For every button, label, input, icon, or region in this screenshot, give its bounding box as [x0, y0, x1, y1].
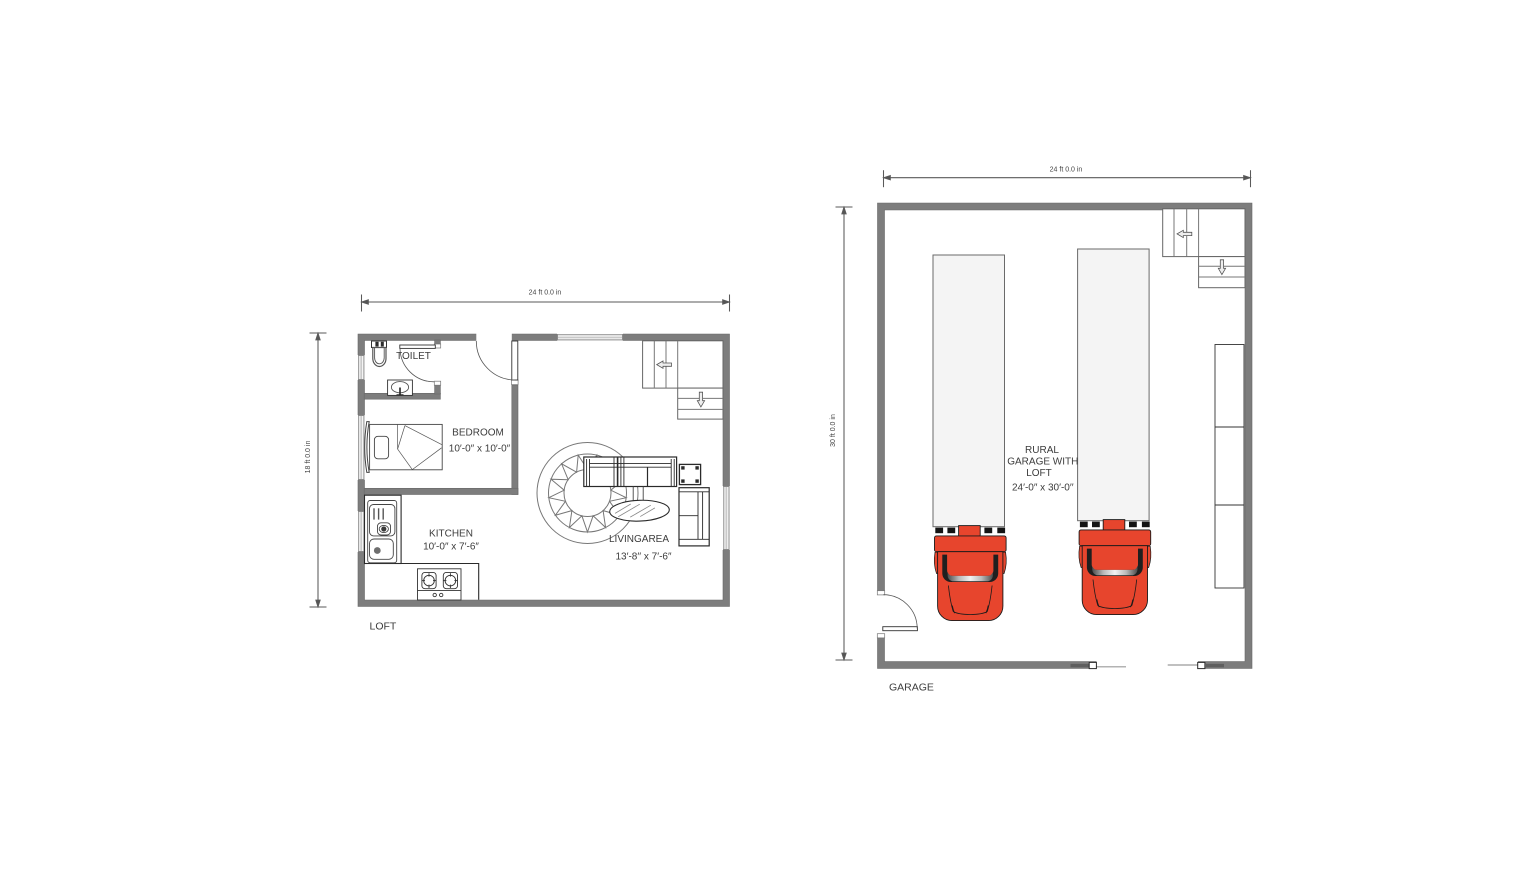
svg-text:KITCHEN: KITCHEN	[429, 529, 473, 540]
svg-text:24′-0″ x 30′-0′′: 24′-0″ x 30′-0′′	[1012, 483, 1074, 494]
svg-text:BEDROOM: BEDROOM	[452, 428, 504, 439]
svg-text:GARAGE WITH: GARAGE WITH	[1007, 457, 1078, 468]
svg-text:13′-8′′ x 7′-6″: 13′-8′′ x 7′-6″	[615, 552, 672, 563]
svg-text:24 ft 0.0 in: 24 ft 0.0 in	[529, 290, 562, 297]
svg-text:TOILET: TOILET	[396, 351, 431, 362]
svg-text:RURAL: RURAL	[1025, 445, 1059, 456]
svg-text:GARAGE: GARAGE	[889, 682, 934, 694]
svg-text:10′-0″ x 10′-0″: 10′-0″ x 10′-0″	[449, 444, 511, 455]
svg-text:24 ft 0.0 in: 24 ft 0.0 in	[1050, 167, 1083, 174]
svg-text:10′-0″ x 7′-6″: 10′-0″ x 7′-6″	[423, 542, 479, 553]
svg-text:18 ft 0.0 in: 18 ft 0.0 in	[305, 441, 312, 474]
svg-text:LIVINGAREA: LIVINGAREA	[609, 534, 669, 545]
svg-text:30 ft 0.0 in: 30 ft 0.0 in	[830, 414, 837, 447]
svg-text:LOFT: LOFT	[370, 621, 397, 633]
svg-text:LOFT: LOFT	[1026, 468, 1052, 479]
